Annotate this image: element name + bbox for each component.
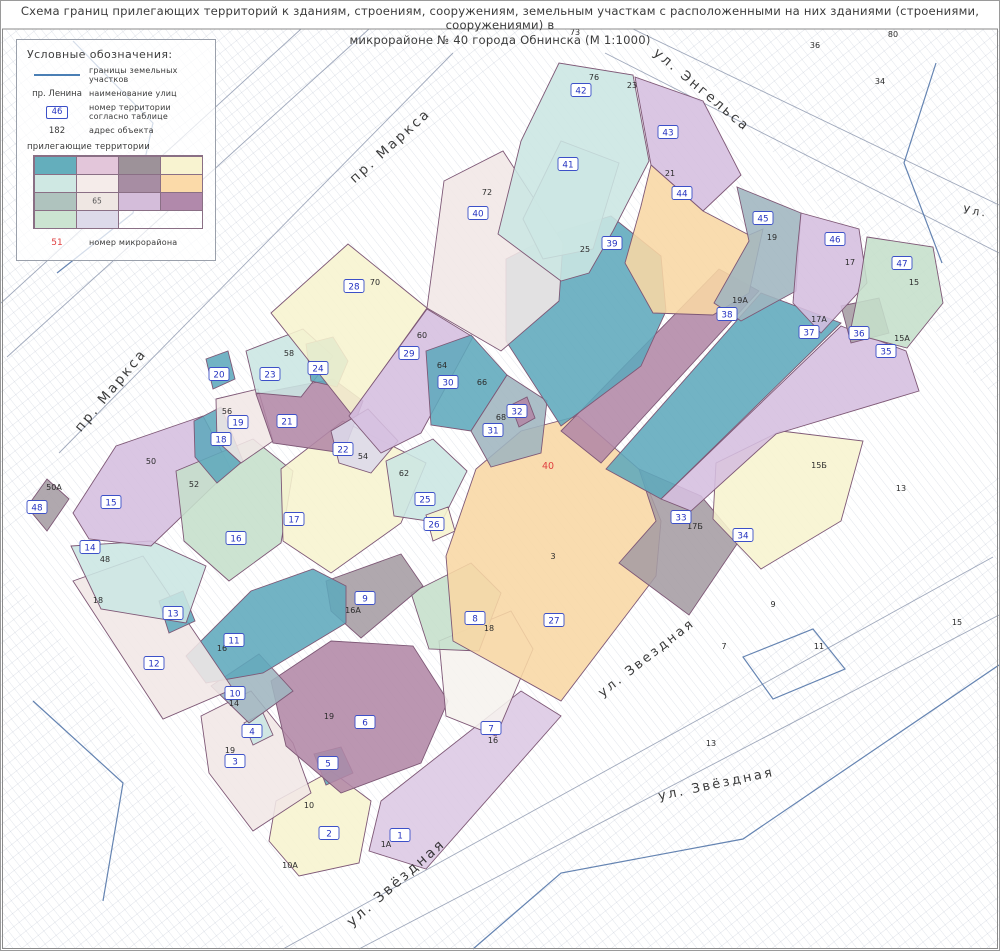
svg-text:4: 4 — [249, 727, 255, 737]
svg-text:18: 18 — [215, 435, 226, 445]
territory-number-13: 13 — [163, 607, 183, 620]
boundary-line-symbol — [34, 74, 80, 76]
legend-item-boundaries: границы земельных участков — [25, 66, 209, 84]
address-label: 70 — [370, 278, 380, 287]
address-label: 34 — [875, 77, 885, 86]
svg-text:43: 43 — [662, 128, 673, 138]
territory-number-44: 44 — [672, 187, 692, 200]
adjacent-territories-label: прилегающие территории — [27, 142, 209, 152]
adjacent-territory-swatch-14 — [76, 210, 119, 229]
svg-text:37: 37 — [803, 328, 814, 338]
territory-number-1: 1 — [390, 829, 410, 842]
territory-number-20: 20 — [209, 368, 229, 381]
territory-number-32: 32 — [507, 405, 527, 418]
address-label: 54 — [358, 452, 368, 461]
territory-number-35: 35 — [876, 345, 896, 358]
svg-text:45: 45 — [757, 214, 768, 224]
adjacent-territory-swatch-11 — [118, 192, 161, 211]
address-label: 3 — [550, 552, 555, 561]
svg-text:28: 28 — [348, 282, 359, 292]
territory-number-47: 47 — [892, 257, 912, 270]
address-label: 50 — [146, 457, 156, 466]
svg-text:27: 27 — [548, 616, 559, 626]
territory-number-46: 46 — [825, 233, 845, 246]
svg-text:22: 22 — [337, 445, 348, 455]
scheme-page: Схема границ прилегающих территорий к зд… — [0, 0, 1000, 951]
svg-text:10: 10 — [229, 689, 241, 699]
svg-text:1: 1 — [397, 831, 403, 841]
address-label: 52 — [189, 480, 199, 489]
territory-number-25: 25 — [415, 493, 435, 506]
svg-text:21: 21 — [281, 417, 292, 427]
legend-panel: Условные обозначения: границы земельных … — [16, 39, 216, 261]
address-label: 13 — [896, 484, 906, 493]
territory-number-42: 42 — [571, 84, 591, 97]
svg-text:6: 6 — [362, 718, 368, 728]
legend-item-territory-number: 46 номер территории согласно таблице — [25, 103, 209, 121]
address-label: 19 — [225, 746, 235, 755]
svg-text:33: 33 — [675, 513, 686, 523]
territory-number-15: 15 — [101, 496, 121, 509]
territory-number-28: 28 — [344, 280, 364, 293]
address-label: 64 — [437, 361, 447, 370]
address-label: 11 — [814, 642, 824, 651]
address-label: 62 — [399, 469, 409, 478]
territory-number-41: 41 — [558, 158, 578, 171]
svg-text:31: 31 — [487, 426, 498, 436]
adjacent-territory-swatch-10: 65 — [76, 192, 119, 211]
address-label: 7 — [721, 642, 726, 651]
address-label: 60 — [417, 331, 427, 340]
territory-number-37: 37 — [799, 326, 819, 339]
street-name-label: наименование улиц — [89, 89, 177, 98]
swatch-note: 65 — [92, 197, 102, 206]
map-title-line1: Схема границ прилегающих территорий к зд… — [1, 4, 999, 32]
territory-number-5: 5 — [318, 757, 338, 770]
territory-number-45: 45 — [753, 212, 773, 225]
svg-text:44: 44 — [676, 189, 688, 199]
address-label: 15Б — [811, 461, 827, 470]
adjacent-territory-swatch-9 — [34, 192, 77, 211]
territory-number-22: 22 — [333, 443, 353, 456]
territory-number-label: номер территории согласно таблице — [89, 103, 209, 121]
territory-number-23: 23 — [260, 368, 280, 381]
address-label: 16 — [488, 736, 498, 745]
address-label: 16А — [345, 606, 361, 615]
svg-text:39: 39 — [606, 239, 617, 249]
adjacent-territory-swatch-8 — [160, 174, 203, 193]
territory-number-43: 43 — [658, 126, 678, 139]
territory-number-3: 3 — [225, 755, 245, 768]
address-label: 68 — [496, 413, 506, 422]
territory-number-27: 27 — [544, 614, 564, 627]
map-title-line2: микрорайоне № 40 города Обнинска (М 1:10… — [1, 33, 999, 47]
svg-text:2: 2 — [326, 829, 332, 839]
svg-text:30: 30 — [442, 378, 454, 388]
svg-text:3: 3 — [232, 757, 238, 767]
territory-number-38: 38 — [717, 308, 737, 321]
address-label: 1А — [381, 840, 392, 849]
svg-text:16: 16 — [230, 534, 242, 544]
address-label: 76 — [589, 73, 599, 82]
territory-number-6: 6 — [355, 716, 375, 729]
legend-item-district-number: 51 номер микрорайона — [25, 236, 209, 249]
address-label: 17 — [845, 258, 855, 267]
district-number-example: 51 — [25, 238, 89, 248]
territory-number-18: 18 — [211, 433, 231, 446]
territory-number-36: 36 — [849, 327, 869, 340]
street-name-example: пр. Ленина — [25, 89, 89, 99]
svg-text:48: 48 — [31, 503, 42, 513]
svg-text:26: 26 — [428, 520, 440, 530]
svg-text:36: 36 — [853, 329, 865, 339]
address-label: 58 — [284, 349, 294, 358]
adjacent-territory-swatch-4 — [160, 156, 203, 175]
address-label: 15А — [894, 334, 910, 343]
svg-text:24: 24 — [312, 364, 324, 374]
adjacent-territory-swatch-6 — [76, 174, 119, 193]
adjacent-territory-swatch-12 — [160, 192, 203, 211]
address-label: 10А — [282, 861, 298, 870]
address-label: 48 — [100, 555, 110, 564]
adjacent-territories-swatches: 65 — [33, 155, 203, 229]
district-number-label: номер микрорайона — [89, 238, 177, 247]
address-label: адрес объекта — [89, 126, 154, 135]
svg-text:17: 17 — [288, 515, 299, 525]
address-label: 18 — [484, 624, 494, 633]
legend-item-address: 182 адрес объекта — [25, 124, 209, 137]
legend-heading: Условные обозначения: — [27, 48, 209, 61]
svg-text:15: 15 — [105, 498, 116, 508]
territory-number-34: 34 — [733, 529, 753, 542]
territory-number-26: 26 — [424, 518, 444, 531]
address-label: 19 — [767, 233, 777, 242]
adjacent-territory-swatch-7 — [118, 174, 161, 193]
territory-number-29: 29 — [399, 347, 419, 360]
svg-text:13: 13 — [167, 609, 178, 619]
territory-number-11: 11 — [224, 634, 244, 647]
address-label: 15 — [952, 618, 962, 627]
address-label: 25 — [580, 245, 590, 254]
svg-text:9: 9 — [362, 594, 368, 604]
adjacent-territory-swatch-3 — [118, 156, 161, 175]
address-label: 50А — [46, 483, 62, 492]
territory-number-16: 16 — [226, 532, 246, 545]
adjacent-territory-swatch-5 — [34, 174, 77, 193]
svg-text:32: 32 — [511, 407, 522, 417]
address-example: 182 — [25, 126, 89, 136]
svg-text:38: 38 — [721, 310, 732, 320]
svg-text:7: 7 — [488, 724, 494, 734]
svg-text:5: 5 — [325, 759, 331, 769]
territory-number-31: 31 — [483, 424, 503, 437]
address-label: 10 — [304, 801, 314, 810]
svg-text:47: 47 — [896, 259, 907, 269]
svg-text:11: 11 — [228, 636, 239, 646]
territory-number-48: 48 — [27, 501, 47, 514]
territory-number-40: 40 — [468, 207, 488, 220]
territory-number-21: 21 — [277, 415, 297, 428]
territory-number-19: 19 — [228, 416, 248, 429]
svg-text:34: 34 — [737, 531, 749, 541]
map-title: Схема границ прилегающих территорий к зд… — [1, 4, 999, 47]
svg-text:14: 14 — [84, 543, 96, 553]
address-label: 66 — [477, 378, 487, 387]
adjacent-territory-swatch-13 — [34, 210, 77, 229]
svg-text:19: 19 — [232, 418, 243, 428]
territory-number-example: 46 — [46, 106, 68, 119]
territory-number-14: 14 — [80, 541, 100, 554]
address-label: 18 — [93, 596, 103, 605]
territory-number-17: 17 — [284, 513, 304, 526]
address-label: 19А — [732, 296, 748, 305]
territory-number-12: 12 — [144, 657, 164, 670]
address-label: 17А — [811, 315, 827, 324]
svg-text:42: 42 — [575, 86, 586, 96]
address-label: 23 — [627, 81, 637, 90]
legend-item-street-name: пр. Ленина наименование улиц — [25, 87, 209, 100]
svg-text:8: 8 — [472, 614, 478, 624]
address-label: 56 — [222, 407, 232, 416]
address-label: 21 — [665, 169, 675, 178]
svg-text:40: 40 — [472, 209, 484, 219]
svg-text:20: 20 — [213, 370, 225, 380]
territory-number-30: 30 — [438, 376, 458, 389]
svg-text:46: 46 — [829, 235, 841, 245]
svg-text:12: 12 — [148, 659, 159, 669]
territory-number-8: 8 — [465, 612, 485, 625]
adjacent-territory-swatch-1 — [34, 156, 77, 175]
svg-text:41: 41 — [562, 160, 573, 170]
adjacent-territory-swatch-2 — [76, 156, 119, 175]
microdistrict-number: 40 — [542, 461, 554, 472]
territory-number-24: 24 — [308, 362, 328, 375]
address-label: 19 — [324, 712, 334, 721]
svg-text:29: 29 — [403, 349, 414, 359]
territory-number-2: 2 — [319, 827, 339, 840]
svg-text:25: 25 — [419, 495, 430, 505]
territory-number-33: 33 — [671, 511, 691, 524]
address-label: 72 — [482, 188, 492, 197]
territory-number-9: 9 — [355, 592, 375, 605]
svg-text:23: 23 — [264, 370, 275, 380]
address-label: 15 — [909, 278, 919, 287]
svg-text:35: 35 — [880, 347, 891, 357]
territory-number-10: 10 — [225, 687, 245, 700]
address-label: 14 — [229, 699, 239, 708]
territory-number-4: 4 — [242, 725, 262, 738]
territory-number-39: 39 — [602, 237, 622, 250]
address-label: 13 — [706, 739, 716, 748]
address-label: 9 — [770, 600, 775, 609]
boundary-label: границы земельных участков — [89, 66, 209, 84]
territory-number-7: 7 — [481, 722, 501, 735]
